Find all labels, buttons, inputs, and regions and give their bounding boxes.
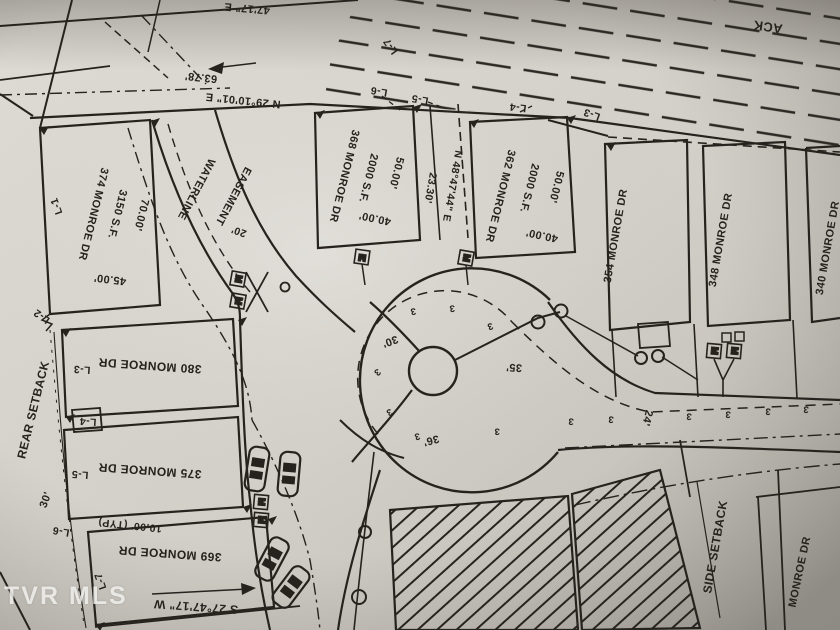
svg-text:3: 3 — [449, 302, 456, 313]
plat-map-drawing: M M M M M M M M 47'17" E 63.78' N 29°10'… — [0, 0, 840, 630]
meter-icon: M — [708, 346, 720, 355]
plat-map-photo: M M M M M M M M 47'17" E 63.78' N 29°10'… — [0, 0, 840, 630]
meter-icon: M — [728, 346, 740, 355]
svg-text:3: 3 — [803, 403, 810, 414]
svg-text:3: 3 — [608, 413, 615, 424]
svg-text:3: 3 — [725, 408, 732, 419]
meter-icon: M — [255, 515, 267, 524]
culdesac-dim-35: 35' — [506, 361, 523, 374]
meter-icon: M — [357, 251, 367, 263]
mls-watermark: TVR MLS — [4, 582, 128, 611]
svg-text:3: 3 — [686, 410, 693, 421]
tag-l3-left: L-3 — [73, 363, 91, 376]
tag-l4-top: L-4 — [509, 100, 527, 114]
meter-icon: M — [255, 497, 267, 506]
tag-l5-left: L-5 — [71, 468, 89, 481]
svg-text:3: 3 — [568, 415, 575, 426]
svg-text:3: 3 — [494, 425, 500, 436]
tag-l4-left: L-4 — [79, 415, 97, 428]
svg-text:3: 3 — [765, 405, 772, 416]
